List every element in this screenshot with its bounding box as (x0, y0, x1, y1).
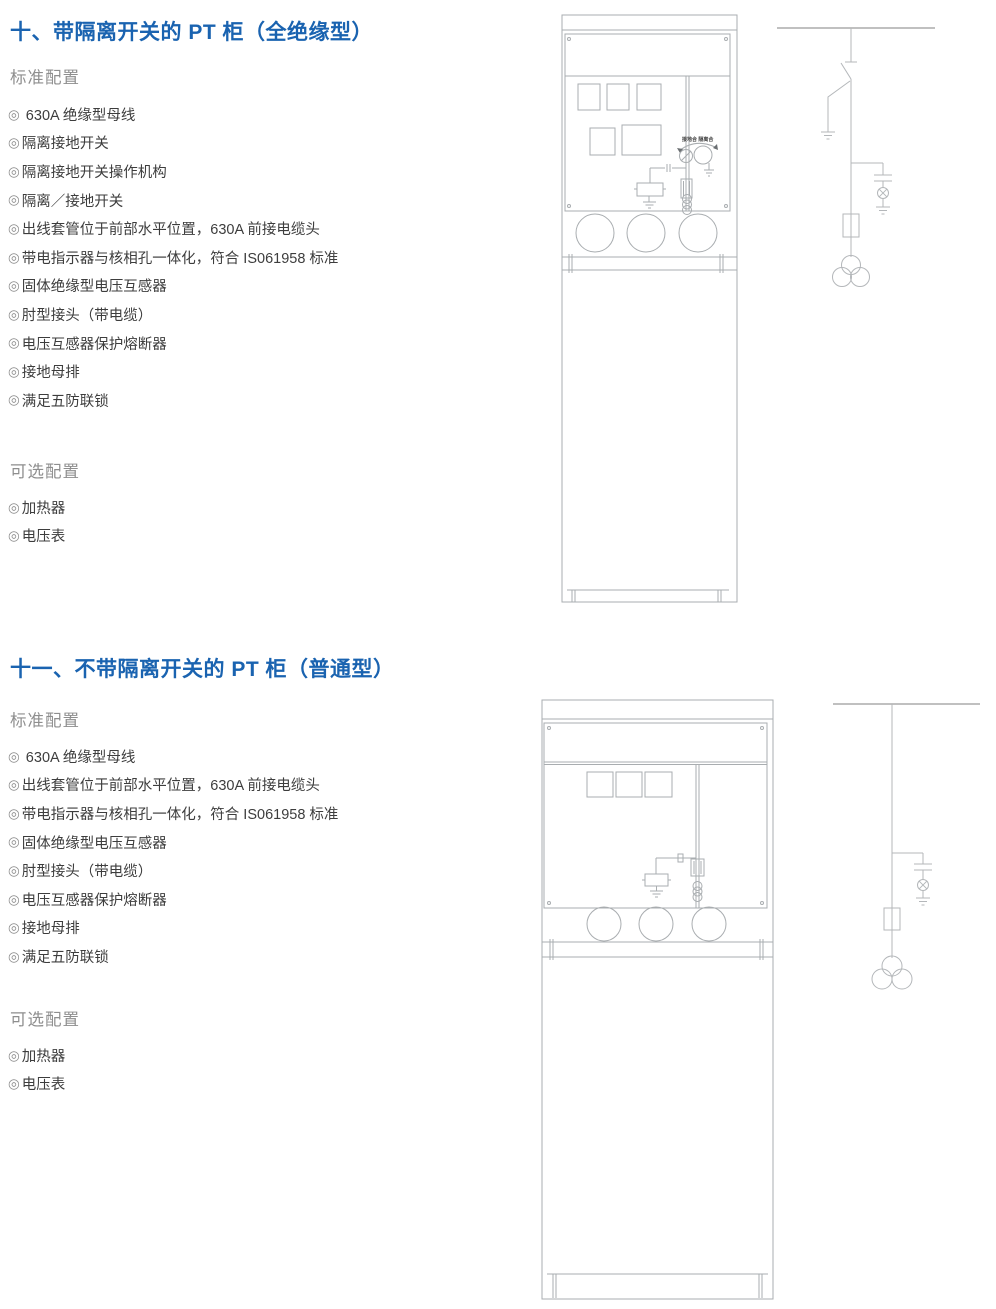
bullet-icon: ◎ (8, 1077, 20, 1091)
list-item-text: 固体绝缘型电压互感器 (22, 832, 167, 853)
section-2-standard-heading: 标准配置 (10, 707, 80, 731)
list-item-text: 隔离／接地开关 (22, 190, 124, 211)
bullet-icon: ◎ (8, 807, 20, 821)
section-1-title: 十、带隔离开关的 PT 柜（全绝缘型） (10, 16, 373, 46)
list-item-text: 630A 绝缘型母线 (22, 746, 136, 767)
mid-rail (542, 939, 773, 960)
list-item-text: 加热器 (22, 1045, 66, 1066)
list-item: ◎固体绝缘型电压互感器 (8, 272, 338, 301)
list-item: ◎肘型接头（带电缆） (8, 300, 338, 329)
bullet-icon: ◎ (8, 750, 20, 764)
list-item-text: 满足五防联锁 (22, 390, 109, 411)
list-item-text: 接地母排 (22, 917, 80, 938)
list-item: ◎隔离接地开关操作机构 (8, 157, 338, 186)
bullet-icon: ◎ (8, 921, 20, 935)
single-line-diagram-with-disconnector (775, 15, 940, 295)
bullet-icon: ◎ (8, 835, 20, 849)
section-2-title: 十一、不带隔离开关的 PT 柜（普通型） (10, 653, 395, 683)
list-item: ◎ 630A 绝缘型母线 (8, 742, 338, 771)
section-1-standard-heading: 标准配置 (10, 64, 80, 88)
instrument-windows (587, 772, 672, 797)
bullet-icon: ◎ (8, 251, 20, 265)
switch-position-label: 接地合 隔离合 (681, 136, 714, 143)
bullet-icon: ◎ (8, 193, 20, 207)
bullet-icon: ◎ (8, 136, 20, 150)
vt-circuit (634, 164, 692, 215)
catalog-page: 十、带隔离开关的 PT 柜（全绝缘型） 标准配置 ◎ 630A 绝缘型母线 ◎隔… (0, 0, 996, 1309)
list-item-text: 出线套管位于前部水平位置，630A 前接电缆头 (22, 218, 320, 239)
bullet-icon: ◎ (8, 501, 20, 515)
section-1-optional-list: ◎加热器 ◎电压表 (8, 493, 65, 550)
list-item-text: 带电指示器与核相孔一体化，符合 IS061958 标准 (22, 803, 339, 824)
cabinet-outline (542, 700, 773, 1299)
circuit-diagram-2 (833, 698, 983, 998)
list-item-text: 满足五防联锁 (22, 946, 109, 967)
list-item: ◎电压互感器保护熔断器 (8, 885, 338, 914)
voltage-transformer-symbol (872, 956, 912, 989)
bullet-icon: ◎ (8, 893, 20, 907)
bullet-icon: ◎ (8, 279, 20, 293)
section-2-optional-heading: 可选配置 (10, 1006, 80, 1030)
list-item: ◎出线套管位于前部水平位置，630A 前接电缆头 (8, 771, 338, 800)
earthing-switch-mechanism: 接地合 隔离合 (677, 136, 718, 176)
voltage-indicator-branch (892, 853, 932, 905)
single-line-diagram-plain (833, 698, 983, 998)
list-item: ◎满足五防联锁 (8, 942, 338, 971)
cable-bushings (576, 214, 717, 252)
list-item-text: 电压互感器保护熔断器 (22, 889, 167, 910)
list-item-text: 固体绝缘型电压互感器 (22, 275, 167, 296)
list-item-text: 电压表 (22, 525, 66, 546)
vt-circuit (642, 854, 704, 902)
list-item-text: 电压互感器保护熔断器 (22, 333, 167, 354)
list-item: ◎带电指示器与核相孔一体化，符合 IS061958 标准 (8, 243, 338, 272)
disconnector-switch (821, 28, 857, 139)
bullet-icon: ◎ (8, 222, 20, 236)
list-item: ◎加热器 (8, 493, 65, 522)
instrument-windows (578, 84, 661, 155)
list-item-text: 出线套管位于前部水平位置，630A 前接电缆头 (22, 774, 320, 795)
list-item-text: 隔离接地开关操作机构 (22, 161, 167, 182)
voltage-indicator-branch (851, 163, 892, 214)
bullet-icon: ◎ (8, 165, 20, 179)
list-item: ◎接地母排 (8, 914, 338, 943)
section-2-standard-list: ◎ 630A 绝缘型母线 ◎出线套管位于前部水平位置，630A 前接电缆头 ◎带… (8, 742, 338, 971)
section-1-standard-list: ◎ 630A 绝缘型母线 ◎隔离接地开关 ◎隔离接地开关操作机构 ◎隔离／接地开… (8, 100, 338, 415)
list-item-text: 630A 绝缘型母线 (22, 104, 136, 125)
list-item-text: 隔离接地开关 (22, 132, 109, 153)
cable-bushings (587, 907, 726, 941)
list-item: ◎满足五防联锁 (8, 386, 338, 415)
list-item: ◎接地母排 (8, 357, 338, 386)
list-item-text: 加热器 (22, 497, 66, 518)
voltage-transformer-symbol (833, 256, 870, 287)
list-item: ◎电压互感器保护熔断器 (8, 329, 338, 358)
cabinet-front-view-2 (540, 698, 777, 1302)
list-item: ◎电压表 (8, 1070, 65, 1099)
bullet-icon: ◎ (8, 393, 20, 407)
bullet-icon: ◎ (8, 529, 20, 543)
list-item-text: 肘型接头（带电缆） (22, 304, 153, 325)
list-item-text: 电压表 (22, 1073, 66, 1094)
section-1-optional-heading: 可选配置 (10, 458, 80, 482)
cabinet-drawing-without-switch (540, 698, 777, 1302)
cabinet-base (547, 1274, 768, 1298)
mid-rail (562, 254, 737, 273)
list-item: ◎ 630A 绝缘型母线 (8, 100, 338, 129)
front-panel (544, 723, 767, 908)
list-item: ◎带电指示器与核相孔一体化，符合 IS061958 标准 (8, 799, 338, 828)
cabinet-outline (562, 15, 737, 602)
list-item: ◎隔离接地开关 (8, 129, 338, 158)
bullet-icon: ◎ (8, 308, 20, 322)
cabinet-front-view-1: 接地合 隔离合 (559, 13, 740, 606)
list-item-text: 带电指示器与核相孔一体化，符合 IS061958 标准 (22, 247, 339, 268)
list-item: ◎隔离／接地开关 (8, 186, 338, 215)
list-item: ◎肘型接头（带电缆） (8, 856, 338, 885)
list-item: ◎电压表 (8, 522, 65, 551)
bullet-icon: ◎ (8, 1049, 20, 1063)
front-panel (565, 34, 730, 211)
bullet-icon: ◎ (8, 950, 20, 964)
cabinet-base (567, 590, 729, 602)
arrow-right-icon (713, 144, 718, 150)
bullet-icon: ◎ (8, 365, 20, 379)
bullet-icon: ◎ (8, 108, 20, 122)
list-item-text: 肘型接头（带电缆） (22, 860, 153, 881)
list-item: ◎出线套管位于前部水平位置，630A 前接电缆头 (8, 214, 338, 243)
circuit-diagram-1 (775, 15, 940, 295)
list-item-text: 接地母排 (22, 361, 80, 382)
cabinet-drawing-with-switch: 接地合 隔离合 (559, 13, 740, 606)
bullet-icon: ◎ (8, 864, 20, 878)
bullet-icon: ◎ (8, 336, 20, 350)
list-item: ◎固体绝缘型电压互感器 (8, 828, 338, 857)
section-2-optional-list: ◎加热器 ◎电压表 (8, 1041, 65, 1098)
list-item: ◎加热器 (8, 1041, 65, 1070)
bullet-icon: ◎ (8, 778, 20, 792)
